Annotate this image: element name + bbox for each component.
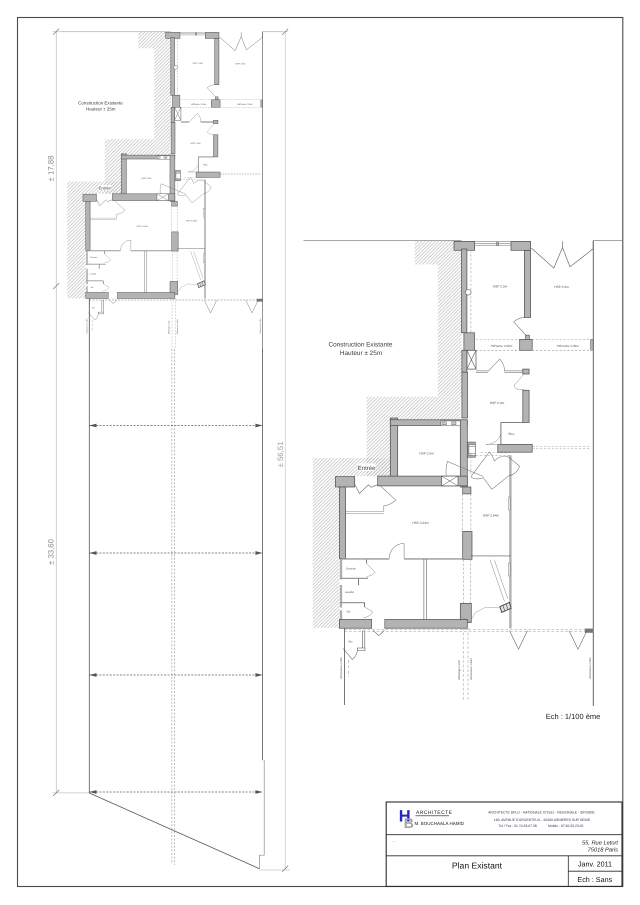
svg-text:Mobile : 07.60.03.23.02: Mobile : 07.60.03.23.02 bbox=[548, 824, 584, 828]
svg-text:± 56,51: ± 56,51 bbox=[276, 442, 285, 468]
svg-text:± 33,60: ± 33,60 bbox=[47, 538, 56, 565]
svg-text:Ech : 1/100 ème: Ech : 1/100 ème bbox=[546, 712, 601, 721]
svg-text:B: B bbox=[404, 815, 414, 831]
svg-text:Plan Existant: Plan Existant bbox=[452, 861, 503, 871]
svg-text:ARCHITECTE DPLG - NATIONALE 07: ARCHITECTE DPLG - NATIONALE 071551 - REG… bbox=[488, 811, 595, 815]
svg-text:± 17,88: ± 17,88 bbox=[47, 156, 56, 182]
svg-text:55, Rue Letort: 55, Rue Letort bbox=[582, 841, 618, 847]
svg-text:Janv. 2011: Janv. 2011 bbox=[578, 859, 612, 868]
svg-text:75018 Paris: 75018 Paris bbox=[588, 846, 619, 853]
svg-text:M. BOUCHAALA HAMID: M. BOUCHAALA HAMID bbox=[415, 821, 465, 826]
svg-text:Tel / Fax : 01.74.63.67.38: Tel / Fax : 01.74.63.67.38 bbox=[499, 824, 537, 828]
svg-text:160, AVENUE D'ARGENTEUIL - 926: 160, AVENUE D'ARGENTEUIL - 92600 ASNIERE… bbox=[494, 818, 591, 822]
svg-text:ARCHITECTE: ARCHITECTE bbox=[416, 810, 453, 816]
svg-text:Ech : Sans: Ech : Sans bbox=[577, 875, 612, 884]
svg-text:...: ... bbox=[392, 838, 395, 843]
